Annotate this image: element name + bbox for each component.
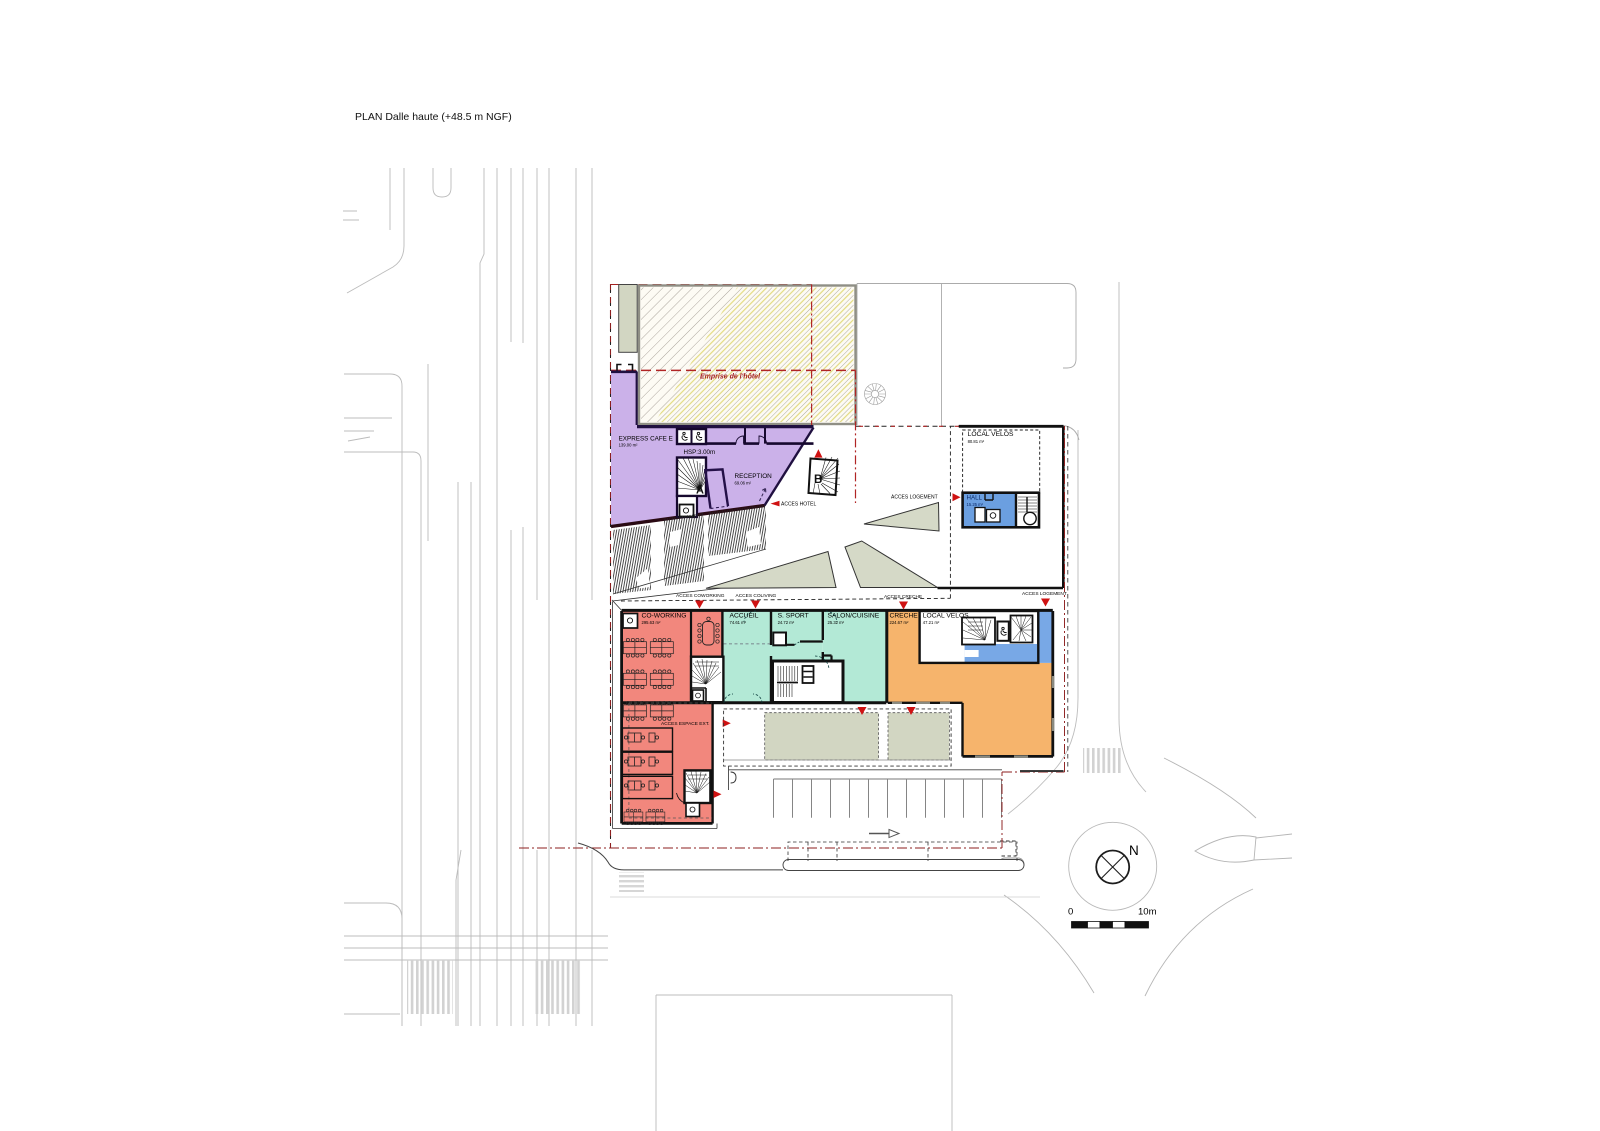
svg-text:47.21 m²: 47.21 m²	[923, 620, 940, 625]
svg-text:N: N	[1129, 843, 1139, 858]
svg-text:ACCES ESPACE EXT.: ACCES ESPACE EXT.	[661, 721, 709, 727]
svg-text:A: A	[696, 485, 704, 497]
svg-text:CRECHE: CRECHE	[890, 613, 919, 620]
svg-text:139.00 m²: 139.00 m²	[619, 443, 638, 448]
svg-text:80.81 m²: 80.81 m²	[968, 439, 985, 444]
svg-text:HALL: HALL	[967, 495, 983, 502]
svg-text:0: 0	[1068, 907, 1073, 918]
svg-text:RECEPTION: RECEPTION	[735, 473, 773, 480]
svg-text:LOCAL VELOS: LOCAL VELOS	[923, 613, 969, 620]
svg-text:ACCES COWORKING: ACCES COWORKING	[676, 593, 725, 599]
svg-text:HSP:3.00m: HSP:3.00m	[684, 449, 716, 456]
svg-text:69.06 m²: 69.06 m²	[735, 481, 752, 486]
svg-text:B: B	[814, 474, 822, 486]
svg-text:EXPRESS CAFE E: EXPRESS CAFE E	[619, 436, 673, 443]
svg-text:224.67 m²: 224.67 m²	[890, 620, 909, 625]
svg-text:ACCUEIL: ACCUEIL	[730, 613, 759, 620]
svg-text:ACCES LOGEMENT: ACCES LOGEMENT	[1022, 591, 1067, 597]
svg-text:PLAN Dalle haute (+48.5 m NGF): PLAN Dalle haute (+48.5 m NGF)	[355, 111, 512, 123]
svg-text:ACCES COLIVING: ACCES COLIVING	[736, 593, 777, 599]
svg-text:SALON/CUISINE: SALON/CUISINE	[828, 613, 880, 620]
svg-text:ACCES HOTEL: ACCES HOTEL	[781, 502, 817, 508]
svg-text:24.72 m²: 24.72 m²	[778, 620, 795, 625]
svg-text:LOCAL VELOS: LOCAL VELOS	[968, 431, 1014, 438]
svg-text:10m: 10m	[1138, 907, 1157, 918]
svg-text:ACCES LOGEMENT: ACCES LOGEMENT	[891, 495, 938, 501]
svg-text:S. SPORT: S. SPORT	[778, 613, 809, 620]
svg-text:Emprise de l'hôtel: Emprise de l'hôtel	[700, 374, 761, 381]
svg-text:295.63 m²: 295.63 m²	[642, 620, 661, 625]
svg-text:15.25 m²: 15.25 m²	[967, 502, 984, 507]
svg-text:CO-WORKING: CO-WORKING	[642, 613, 687, 620]
svg-text:25.32 m²: 25.32 m²	[828, 620, 845, 625]
svg-text:ACCES CRECHE: ACCES CRECHE	[884, 594, 922, 600]
